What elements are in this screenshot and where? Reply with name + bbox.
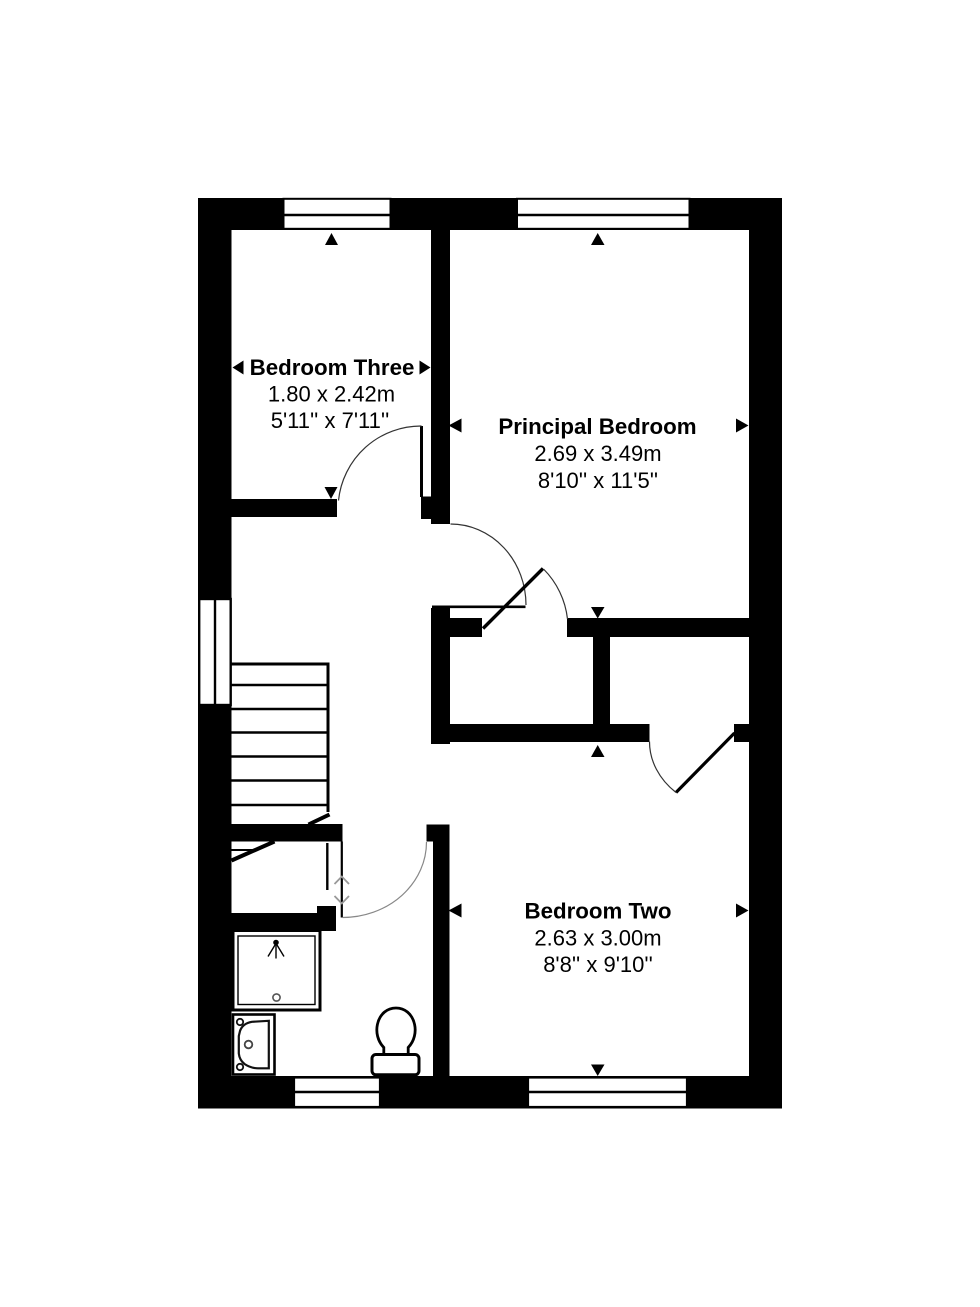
- svg-text:8'10'' x 11'5'': 8'10'' x 11'5'': [538, 468, 658, 493]
- svg-text:Bedroom Two: Bedroom Two: [525, 899, 672, 924]
- svg-text:Principal Bedroom: Principal Bedroom: [498, 414, 696, 439]
- svg-text:1.80 x 2.42m: 1.80 x 2.42m: [268, 382, 395, 407]
- svg-text:5'11'' x 7'11'': 5'11'' x 7'11'': [271, 408, 390, 433]
- svg-text:8'8'' x 9'10'': 8'8'' x 9'10'': [543, 952, 653, 977]
- svg-text:2.69 x 3.49m: 2.69 x 3.49m: [534, 441, 661, 466]
- svg-text:2.63 x 3.00m: 2.63 x 3.00m: [534, 926, 661, 951]
- svg-text:Bedroom Three: Bedroom Three: [250, 355, 415, 380]
